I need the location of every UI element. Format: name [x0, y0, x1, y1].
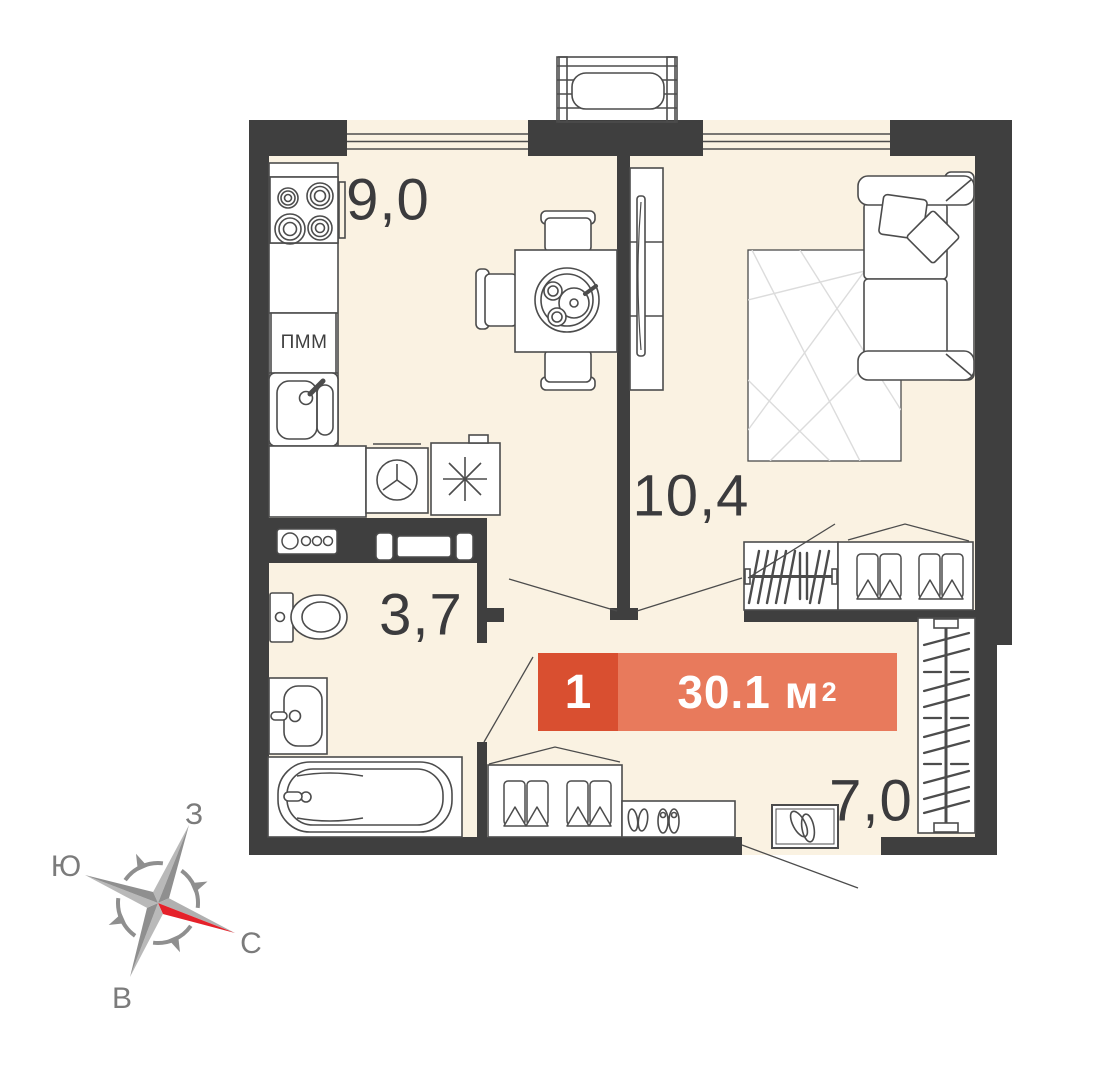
- dishwasher-label: ПММ: [281, 332, 328, 354]
- wall-top-center: [528, 120, 703, 156]
- living-room-window: [703, 120, 890, 156]
- compass-south-label: Ю: [51, 850, 81, 884]
- kitchen-counter-low: [269, 446, 366, 517]
- fridge-handle: [469, 435, 488, 443]
- floor-plan-drawing: [0, 0, 1097, 1066]
- bathroom-area-label: 3,7: [379, 582, 463, 649]
- room-wardrobe: [744, 542, 973, 610]
- fridge: [431, 435, 500, 515]
- compass-east-label: В: [112, 982, 132, 1016]
- badge-rooms-count: 1: [538, 653, 618, 731]
- kitchen-sink: [269, 373, 338, 446]
- toilet: [270, 593, 347, 642]
- sofa: [858, 172, 974, 380]
- control-panel: [277, 529, 337, 554]
- compass-star: [85, 825, 235, 977]
- wall-bottom-left: [249, 837, 742, 855]
- compass-north-label: С: [240, 927, 262, 961]
- bathroom-sink: [269, 678, 327, 754]
- wall-right-upper: [975, 120, 1012, 645]
- floor-plan-page: 9,0 10,4 3,7 7,0 ПММ 1 30.1 м2 З Ю С В: [0, 0, 1097, 1066]
- badge-total-area: 30.1 м2: [618, 653, 897, 731]
- wall-bathroom-right: [477, 563, 487, 643]
- hall-wardrobe: [488, 765, 622, 837]
- compass-rose: [85, 825, 235, 977]
- kitchen-area-label: 9,0: [346, 167, 430, 234]
- coat-rack: [918, 618, 975, 833]
- wall-right-lower: [975, 645, 997, 855]
- tv-stand: [630, 168, 663, 390]
- hall-bench: [376, 533, 473, 560]
- door-mat: [772, 805, 838, 848]
- wall-left: [249, 120, 269, 855]
- washing-machine: [366, 444, 428, 513]
- wall-bathroom-door-jamb: [487, 608, 504, 622]
- shoe-rack: [622, 801, 735, 837]
- wall-kitchen-room-partition: [617, 156, 630, 610]
- kitchen-window: [347, 120, 528, 156]
- wall-bottom-right: [881, 837, 997, 855]
- compass-west-label: З: [185, 798, 203, 832]
- area-badge: 1 30.1 м2: [538, 653, 897, 731]
- hallway-area-label: 7,0: [829, 768, 913, 835]
- wall-bathroom-right-stub: [477, 742, 487, 837]
- cooktop: [270, 177, 345, 244]
- badge-area-value: 30.1 м: [677, 665, 819, 719]
- living-room-area-label: 10,4: [633, 463, 750, 530]
- balcony-basket: [557, 57, 677, 122]
- bathtub: [268, 757, 462, 837]
